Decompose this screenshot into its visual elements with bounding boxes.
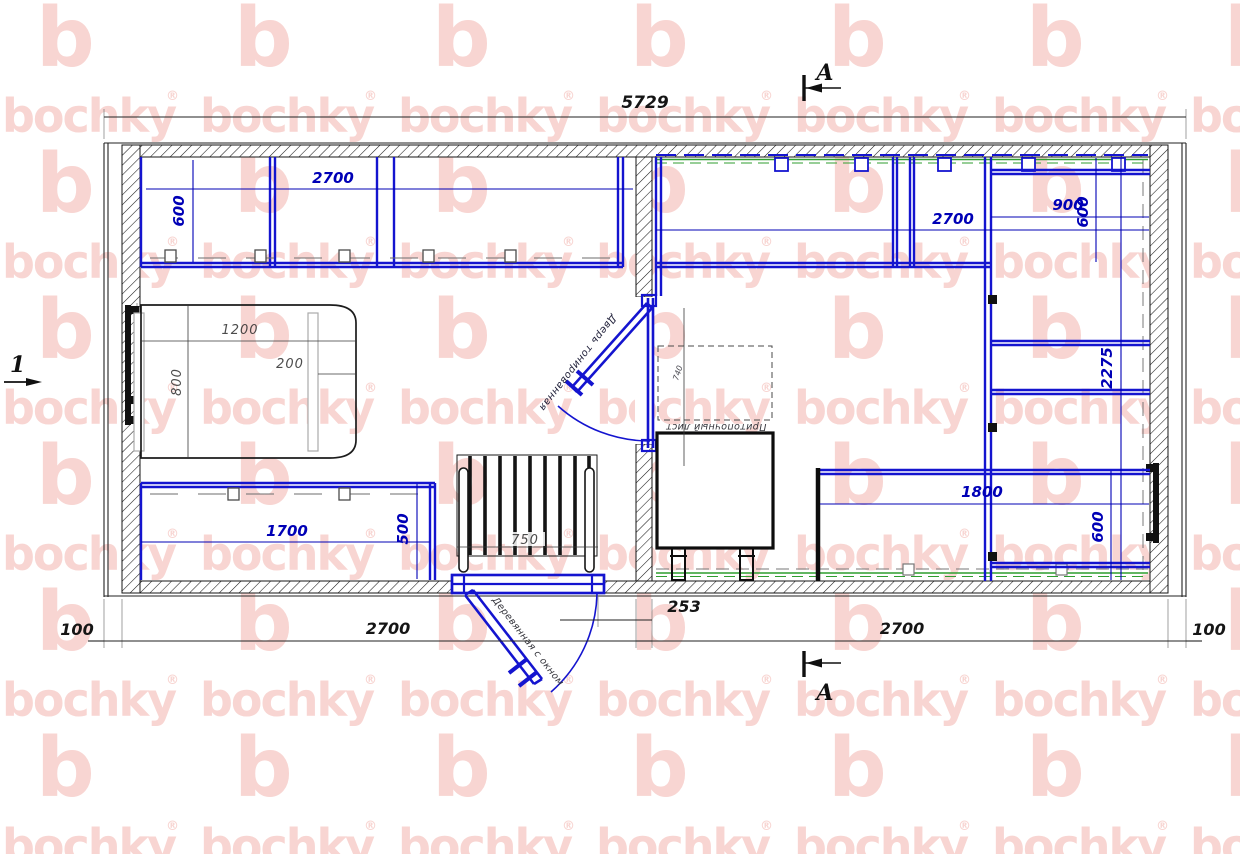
floor-plan-page: b bochky ® [0, 0, 1240, 854]
wall-partition-upper [636, 157, 652, 297]
stove-sheet-label: Притопочный лист [666, 421, 767, 432]
dim-right-bottom-bench-width: 1800 [961, 483, 1003, 501]
dim-left-bottom-bench-width: 1700 [266, 522, 308, 540]
dim-left-bottom-bench-depth: 500 [394, 513, 412, 544]
floor-plan-canvas: b bochky ® [0, 0, 1240, 854]
dim-chain-right-2700: 2700 [880, 619, 925, 638]
dim-chain-right-100: 100 [1192, 620, 1225, 639]
wall-partition-lower [636, 444, 652, 581]
dim-left-top-bench-width: 2700 [312, 169, 354, 187]
view-marker-number: 1 [10, 352, 25, 378]
dim-chain-253: 253 [667, 597, 700, 616]
dim-right-bottom-bench-depth: 600 [1089, 511, 1107, 542]
dim-right-room-length: 2275 [1098, 347, 1116, 389]
dim-table-offset: 200 [276, 357, 304, 372]
dim-right-room-width: 2700 [932, 210, 974, 228]
dim-left-top-bench-depth: 600 [170, 195, 188, 226]
wall-bottom [122, 581, 1168, 593]
dim-overall-width: 5729 [621, 93, 668, 113]
section-letter-top: А [814, 60, 834, 86]
section-letter-bottom: А [814, 680, 834, 706]
watermark-layer [0, 0, 1240, 854]
dim-table-width: 1200 [221, 323, 258, 338]
dim-chain-left-2700: 2700 [366, 619, 411, 638]
dim-entry-door-width: 750 [511, 533, 539, 548]
dim-chain-left-100: 100 [60, 620, 93, 639]
inner-door-opening [635, 297, 653, 444]
dim-table-depth: 800 [170, 368, 185, 396]
dim-right-top-bench-depth: 600 [1074, 196, 1092, 227]
